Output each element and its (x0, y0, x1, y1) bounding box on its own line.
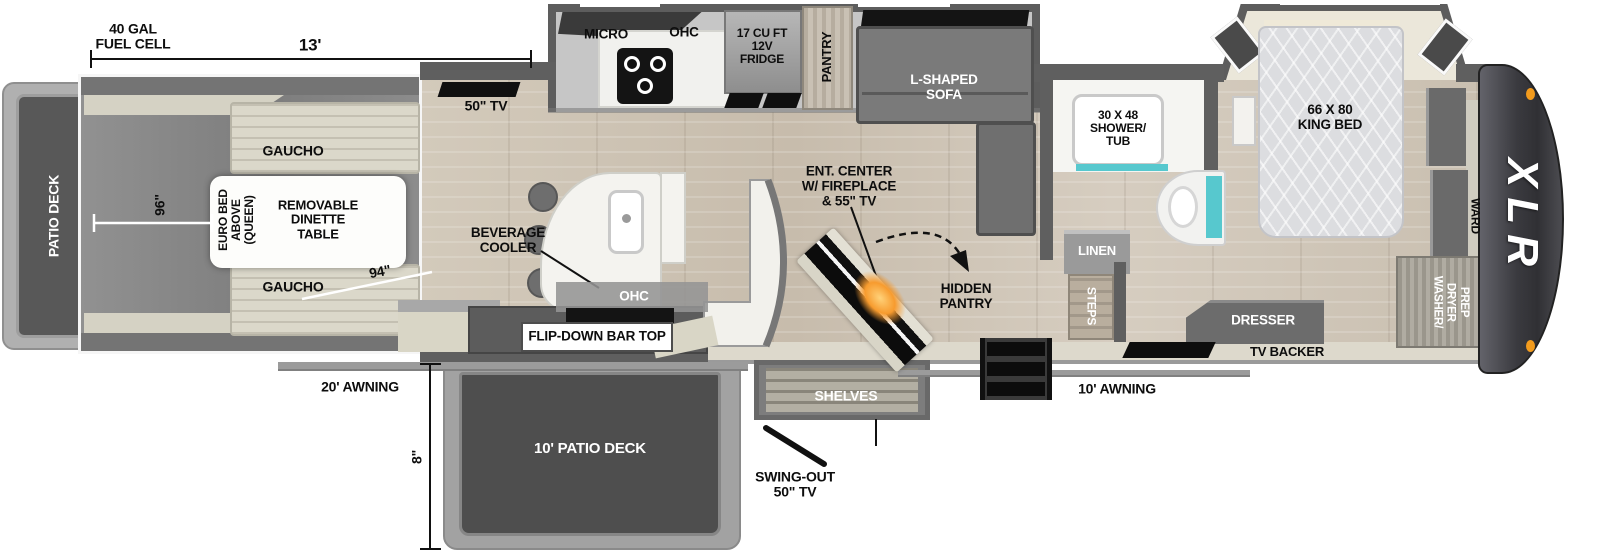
stove-burner (624, 56, 640, 72)
bath-sink (1168, 186, 1198, 228)
shelves-label: SHELVES (815, 388, 878, 403)
marker-light-icon (1526, 340, 1535, 352)
fridge-label: 17 CU FT 12V FRIDGE (737, 27, 787, 67)
dim-8-label: 8" (409, 450, 424, 464)
vanity-teal-counter (1206, 176, 1222, 238)
shower-label: 30 X 48 SHOWER/ TUB (1090, 109, 1146, 149)
tv-50-label: 50" TV (465, 98, 508, 113)
flip-bar-label: FLIP-DOWN BAR TOP (528, 330, 665, 345)
dinette-label: REMOVABLE DINETTE TABLE (278, 199, 358, 242)
entry-step (987, 362, 1045, 376)
king-bed-label: 66 X 80 KING BED (1298, 103, 1362, 133)
awning-20-label: 20' AWNING (321, 379, 399, 394)
stove-burner (637, 78, 653, 94)
shower-teal-strip (1076, 164, 1168, 171)
dim-96-label: 96" (152, 194, 167, 216)
micro-label: MICRO (584, 28, 628, 43)
fuel-cell-label: 40 GAL FUEL CELL (96, 22, 171, 53)
linen-label: LINEN (1078, 244, 1116, 258)
gaucho-bottom-label: GAUCHO (262, 279, 323, 294)
sofa-label: L-SHAPED SOFA (910, 73, 977, 103)
awning-10-label: 10' AWNING (1078, 381, 1156, 396)
steps-label: STEPS (1084, 287, 1097, 325)
dresser-label: DRESSER (1231, 314, 1295, 329)
floorplan-canvas: 40 GAL FUEL CELL 13' 50" TV PATIO DECK G… (0, 0, 1600, 556)
ent-center-label: ENT. CENTER W/ FIREPLACE & 55" TV (802, 165, 896, 210)
pantry-label: PANTRY (820, 32, 834, 83)
flip-bar-opening (566, 308, 674, 323)
entry-step (987, 342, 1045, 356)
washer-prep-label: WASHER/ DRYER PREP (1430, 276, 1470, 328)
tv-backer-label: TV BACKER (1250, 345, 1324, 359)
brand-logo: XLR (1498, 158, 1546, 276)
patio-deck-10-label: 10' PATIO DECK (534, 441, 646, 458)
rear-patio-deck-label: PATIO DECK (46, 175, 61, 257)
stove-burner (650, 56, 666, 72)
entry-step (987, 382, 1045, 396)
gaucho-top-label: GAUCHO (262, 143, 323, 158)
ward-label: WARD (1468, 198, 1481, 234)
swing-tv-label: SWING-OUT 50" TV (755, 470, 835, 501)
sink-faucet-icon (622, 214, 631, 223)
hidden-pantry-label: HIDDEN PANTRY (940, 282, 993, 312)
marker-light-icon (1526, 88, 1535, 100)
ohc-kitchen-label: OHC (669, 26, 698, 41)
dim-13ft-label: 13' (299, 37, 321, 56)
tv-backer-panel (1122, 342, 1215, 358)
island-ohc-label: OHC (619, 290, 648, 305)
euro-bed-label: EURO BED ABOVE (QUEEN) (217, 189, 257, 251)
beverage-cooler-label: BEVERAGE COOLER (471, 226, 545, 256)
